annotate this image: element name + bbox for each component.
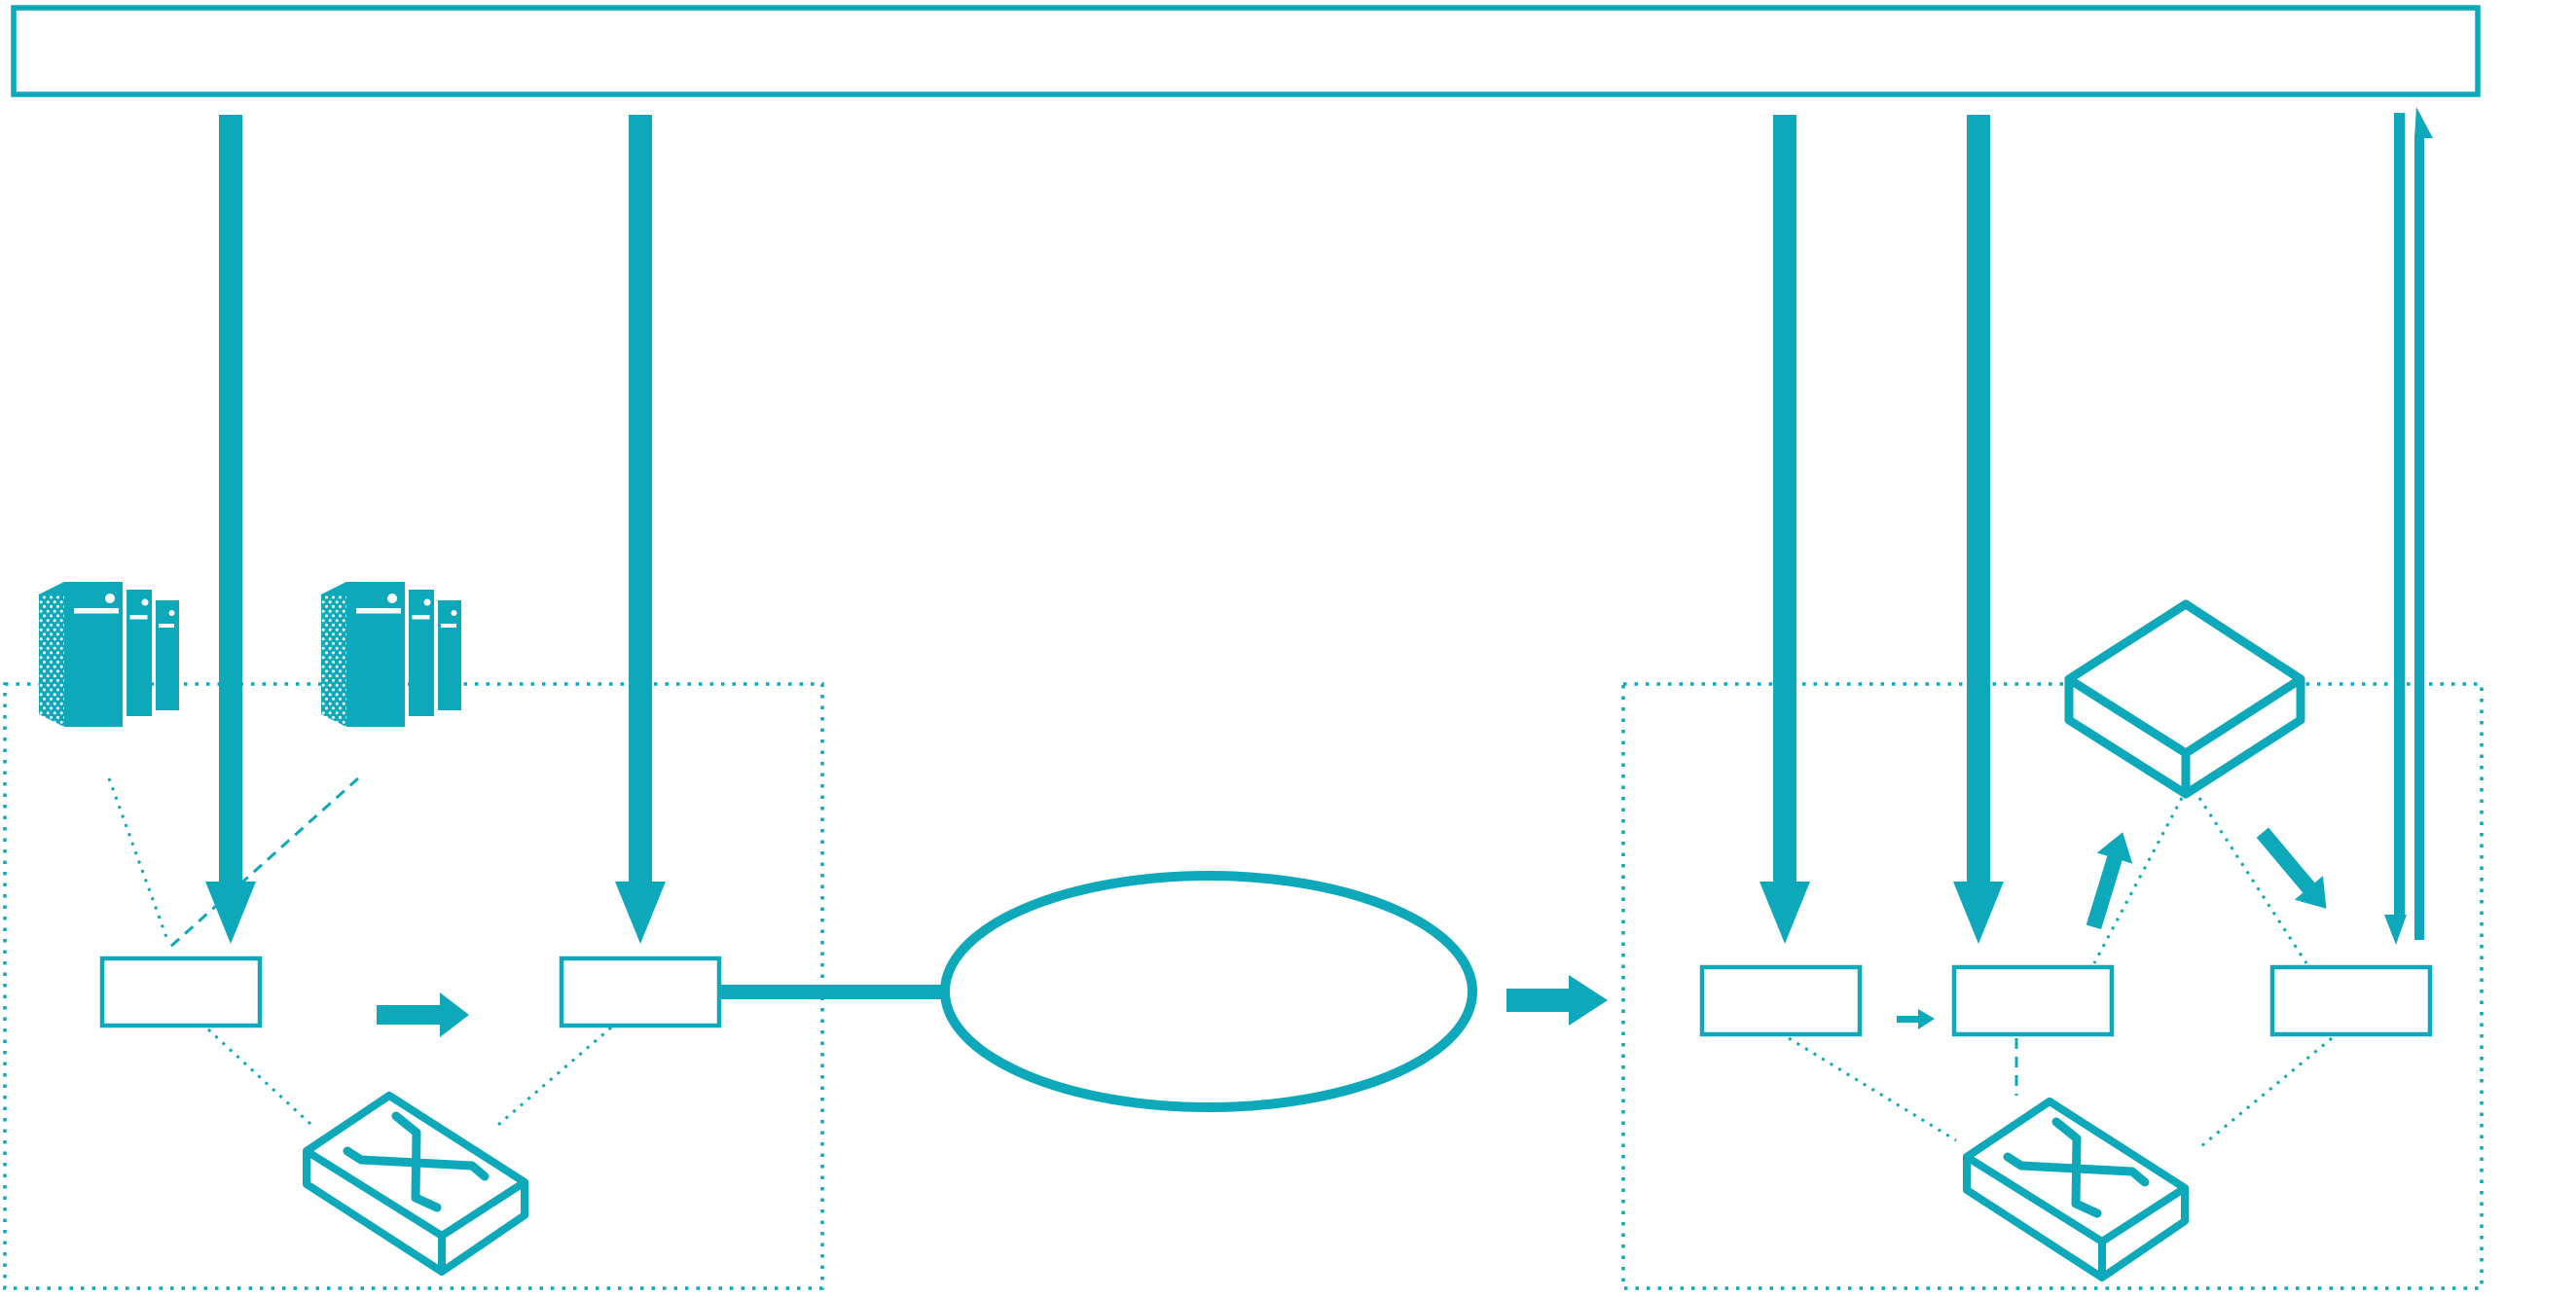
link-box1-to-switch-left xyxy=(208,1029,311,1125)
link-diamond-to-box5 xyxy=(2199,798,2306,963)
server-cluster-icon xyxy=(321,582,461,727)
wan-exit-arrow xyxy=(1506,975,1608,1026)
return-down-arrow xyxy=(2384,113,2407,945)
flow-arrow-4 xyxy=(1953,115,2004,944)
distribution-box-icon xyxy=(2069,604,2301,794)
top-banner xyxy=(14,8,2478,94)
wan-ellipse xyxy=(945,876,1472,1107)
node-box-5 xyxy=(2272,967,2430,1034)
link-box3-to-switch-right xyxy=(1789,1038,1956,1140)
node-box-1 xyxy=(102,958,260,1026)
node-box-4 xyxy=(1954,967,2112,1034)
flow-arrow-3 xyxy=(1760,115,1810,944)
mini-step-arrow xyxy=(1897,1009,1935,1029)
diamond-down-arrow xyxy=(2248,820,2340,920)
node-box-2 xyxy=(562,958,719,1026)
switch-icon-left xyxy=(307,1096,525,1272)
diamond-up-arrow xyxy=(2076,827,2140,933)
flow-arrow-2 xyxy=(615,115,666,944)
flow-arrow-1 xyxy=(205,115,256,944)
switch-icon-right xyxy=(1967,1101,2185,1278)
node-box-3 xyxy=(1702,967,1860,1034)
link-box5-to-switch-right xyxy=(2201,1038,2332,1146)
step-arrow-left xyxy=(377,992,469,1037)
link-servers1-to-box1 xyxy=(109,778,167,940)
link-servers2-to-box1 xyxy=(169,778,358,948)
return-up-arrow xyxy=(2414,107,2433,940)
diagram-canvas xyxy=(0,0,2576,1298)
server-cluster-icon xyxy=(39,582,179,727)
link-box2-to-switch-left xyxy=(498,1028,611,1125)
wan-link-line xyxy=(719,985,949,999)
